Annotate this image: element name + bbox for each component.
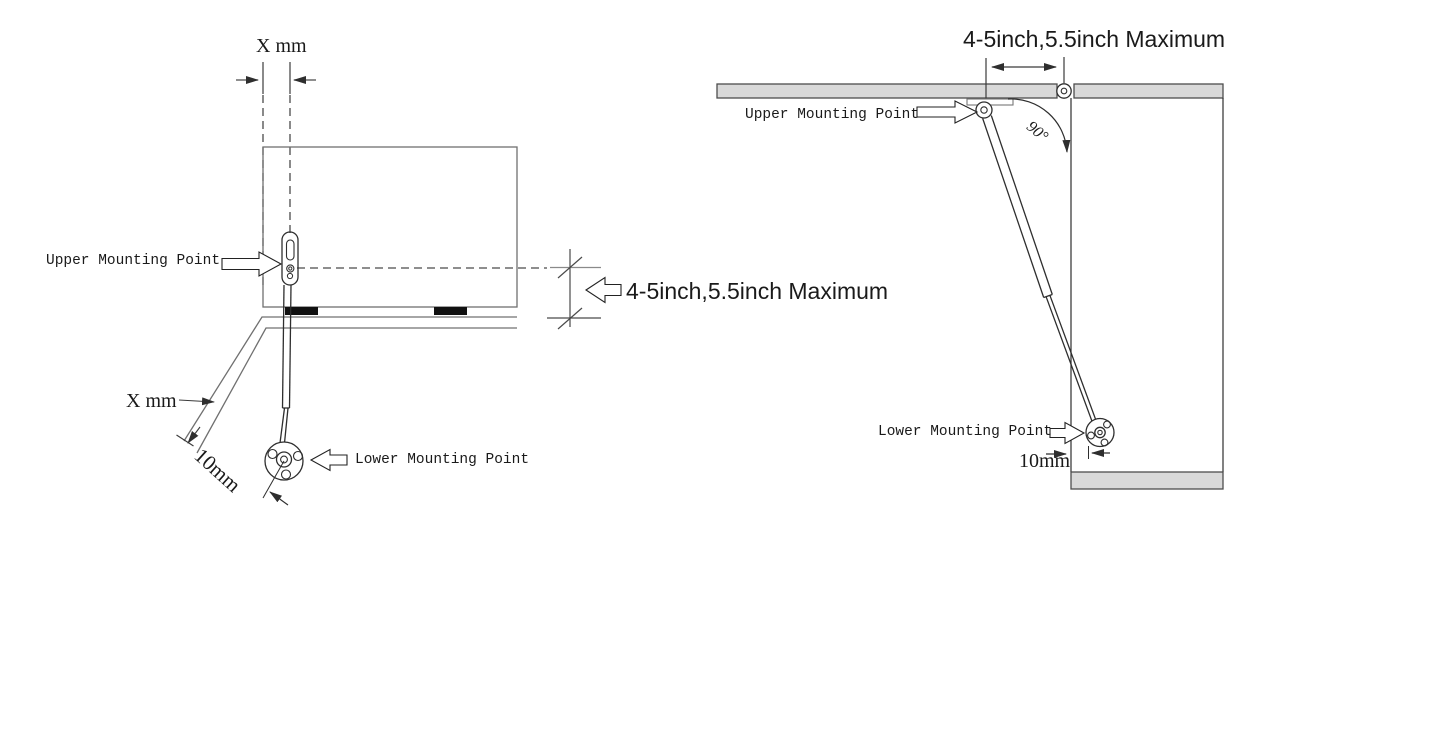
right-lower-flange <box>1086 419 1114 447</box>
left-upper-callout-arrow <box>222 252 281 276</box>
left-upper-bracket <box>282 232 298 285</box>
right-cabinet-top <box>1074 84 1223 98</box>
left-depth-dimension-label: 4-5inch,5.5inch Maximum <box>626 279 888 304</box>
left-lower-mounting-label: Lower Mounting Point <box>355 453 529 469</box>
left-lower-flange <box>263 442 303 505</box>
right-upper-mounting-label: Upper Mounting Point <box>745 108 919 124</box>
left-lower-callout-arrow <box>311 450 347 471</box>
left-diagram-linework <box>177 62 622 505</box>
right-cabinet-bottom <box>1071 472 1223 489</box>
right-hinge <box>1057 84 1071 98</box>
left-dashed-guides <box>263 95 547 288</box>
left-top-offset-label: X mm <box>256 35 307 57</box>
right-lid-panel <box>717 84 1057 98</box>
right-upper-mount <box>976 102 992 118</box>
left-pad-2 <box>434 307 467 315</box>
left-lid-panel <box>263 147 517 307</box>
linework-svg <box>0 0 1451 739</box>
left-pad-1 <box>285 307 318 315</box>
right-depth-dimension-label: 4-5inch,5.5inch Maximum <box>963 27 1225 52</box>
right-gas-strut <box>983 116 1099 430</box>
left-edge-offset-label: X mm <box>126 390 177 412</box>
gas-strut-installation-diagram: X mm Upper Mounting Point 4-5inch,5.5inc… <box>0 0 1451 739</box>
left-top-dimension <box>236 62 316 94</box>
left-depth-callout-arrow <box>586 278 621 303</box>
left-upper-mounting-label: Upper Mounting Point <box>46 254 220 270</box>
right-lower-mounting-label: Lower Mounting Point <box>878 425 1052 441</box>
right-lower-offset-label: 10mm <box>1019 450 1070 472</box>
left-cabinet-edge <box>184 317 517 453</box>
right-lower-callout-arrow <box>1050 423 1084 444</box>
